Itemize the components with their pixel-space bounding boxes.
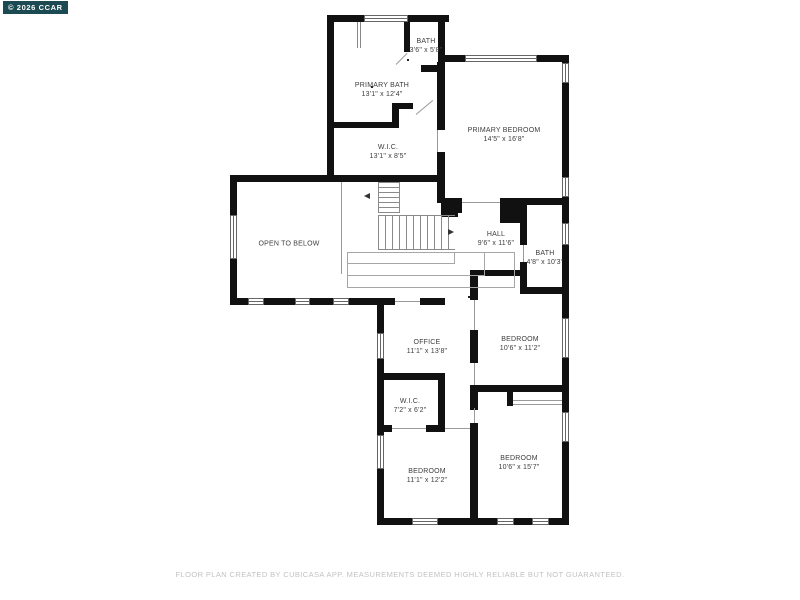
room-dims: 13'1" x 12'4": [355, 90, 409, 99]
window: [377, 333, 384, 359]
room-name: OFFICE: [407, 338, 447, 347]
room-label-bedroom-mid: BEDROOM 10'6" x 11'2": [500, 335, 540, 353]
wall-segment: [520, 198, 568, 205]
wall-segment: [377, 373, 445, 380]
door-opening-line: [513, 404, 562, 405]
window: [364, 15, 408, 22]
door-opening-line: [523, 245, 524, 262]
door-opening-line: [513, 400, 562, 401]
door-opening-line: [341, 182, 342, 274]
wall-segment: [230, 175, 445, 182]
door-leaf-line: [396, 53, 408, 65]
window: [532, 518, 549, 525]
room-name: BATH: [527, 249, 564, 258]
window: [562, 318, 569, 358]
wall-segment: [420, 298, 445, 305]
wall-segment: [443, 198, 462, 213]
room-label-primary-bedroom: PRIMARY BEDROOM 14'5" x 16'8": [468, 126, 541, 144]
wall-segment: [562, 55, 569, 525]
window: [562, 412, 569, 442]
room-dims: 11'1" x 13'8": [407, 347, 447, 356]
stair-direction-arrow-down: [448, 229, 454, 235]
door-opening-line: [392, 428, 426, 429]
room-dims: 13'1" x 8'5": [370, 152, 407, 161]
window: [562, 63, 569, 83]
window: [412, 518, 438, 525]
window: [562, 223, 569, 245]
stair-upper-flight: [378, 182, 400, 213]
room-dims: 9'6" x 11'6": [478, 239, 514, 248]
wall-segment: [438, 380, 445, 432]
wall-segment: [437, 62, 445, 130]
door-leaf-line: [416, 100, 433, 115]
floor-plan: BATH 3'6" x 5'8" PRIMARY BATH 13'1" x 12…: [0, 0, 800, 600]
door-opening-line: [462, 202, 500, 203]
window: [465, 55, 537, 62]
wall-segment: [470, 330, 478, 363]
window: [248, 298, 264, 305]
room-name: BATH: [410, 37, 443, 46]
room-dims: 3'6" x 5'8": [410, 46, 443, 55]
room-label-wic-upper: W.I.C. 13'1" x 8'5": [370, 143, 407, 161]
window: [295, 298, 310, 305]
room-dims: 4'8" x 10'3": [527, 258, 564, 267]
room-name: W.I.C.: [394, 397, 427, 406]
door-opening-line: [445, 428, 470, 429]
wall-segment: [421, 65, 445, 72]
room-dims: 11'1" x 12'2": [407, 476, 447, 485]
wall-segment: [330, 122, 395, 128]
wall-segment: [470, 423, 478, 525]
room-label-bath-right: BATH 4'8" x 10'3": [527, 249, 564, 267]
shower-partition: [357, 22, 361, 48]
wall-segment: [520, 205, 527, 245]
room-dims: 10'6" x 15'7": [499, 463, 540, 472]
wall-segment: [327, 15, 334, 182]
stair-main-flight: [378, 215, 455, 250]
room-name: W.I.C.: [370, 143, 407, 152]
stair-railing-line: [347, 252, 455, 264]
disclaimer-text: FLOOR PLAN CREATED BY CUBICASA APP. MEAS…: [0, 570, 800, 579]
room-name: BEDROOM: [500, 335, 540, 344]
door-opening-line: [437, 130, 438, 152]
wall-segment: [520, 287, 568, 294]
door-opening-line: [474, 363, 475, 385]
room-name: BEDROOM: [407, 467, 447, 476]
room-dims: 7'2" x 6'2": [394, 406, 427, 415]
wall-segment: [500, 198, 522, 223]
wall-segment: [384, 298, 395, 305]
room-name: OPEN TO BELOW: [258, 240, 319, 249]
door-opening-line: [395, 301, 420, 302]
window: [497, 518, 514, 525]
room-name: HALL: [478, 230, 514, 239]
room-label-open-to-below: OPEN TO BELOW: [258, 240, 319, 249]
door-opening-line: [474, 300, 475, 330]
stair-direction-arrow-up: [364, 193, 370, 199]
room-dims: 14'5" x 16'8": [468, 135, 541, 144]
marker-dot: [407, 59, 409, 61]
room-label-bedroom-bottom-left: BEDROOM 11'1" x 12'2": [407, 467, 447, 485]
room-name: PRIMARY BATH: [355, 81, 409, 90]
window: [377, 435, 384, 469]
wall-segment: [470, 385, 568, 392]
window: [333, 298, 349, 305]
room-name: PRIMARY BEDROOM: [468, 126, 541, 135]
room-label-primary-bath: PRIMARY BATH 13'1" x 12'4": [355, 81, 409, 99]
room-label-bedroom-bottom-right: BEDROOM 10'6" x 15'7": [499, 454, 540, 472]
room-dims: 10'6" x 11'2": [500, 344, 540, 353]
door-opening-line: [474, 408, 475, 423]
window: [230, 215, 237, 259]
room-label-hall: HALL 9'6" x 11'6": [478, 230, 514, 248]
room-label-bath-top: BATH 3'6" x 5'8": [410, 37, 443, 55]
window: [562, 177, 569, 197]
wall-segment: [437, 152, 445, 203]
room-name: BEDROOM: [499, 454, 540, 463]
room-label-office: OFFICE 11'1" x 13'8": [407, 338, 447, 356]
room-label-wic-lower: W.I.C. 7'2" x 6'2": [394, 397, 427, 415]
